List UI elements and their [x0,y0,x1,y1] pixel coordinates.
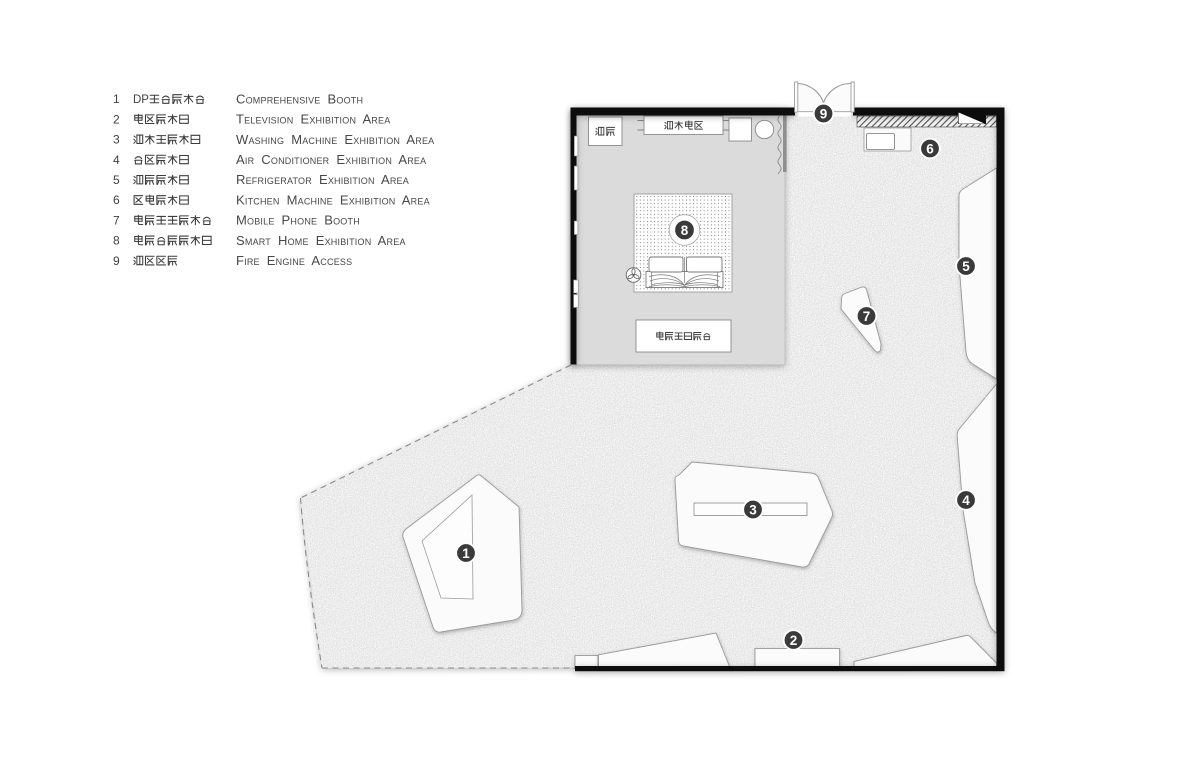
svg-text:1: 1 [113,92,120,106]
svg-text:7: 7 [113,213,120,227]
svg-text:Refrigerator Exhibition Area: Refrigerator Exhibition Area [236,172,409,187]
svg-text:4: 4 [962,493,970,508]
svg-text:6: 6 [113,193,120,207]
svg-text:Television Exhibition Area: Television Exhibition Area [236,112,390,127]
svg-text:6: 6 [926,141,934,156]
svg-text:Fire Engine Access: Fire Engine Access [236,253,352,268]
svg-text:5: 5 [962,259,970,274]
svg-text:4: 4 [113,153,120,167]
svg-text:2: 2 [790,633,798,648]
svg-text:3: 3 [749,502,757,517]
svg-text:9: 9 [113,254,120,268]
svg-text:3: 3 [113,133,120,147]
svg-text:Mobile Phone Booth: Mobile Phone Booth [236,213,360,228]
svg-text:8: 8 [113,234,120,248]
svg-text:Smart Home Exhibition Area: Smart Home Exhibition Area [236,233,406,248]
svg-text:7: 7 [863,309,871,324]
svg-text:Air Conditioner Exhibition Are: Air Conditioner Exhibition Area [236,152,426,167]
svg-text:8: 8 [681,223,689,238]
svg-text:Comprehensive Booth: Comprehensive Booth [236,91,363,106]
svg-text:1: 1 [462,546,470,561]
svg-text:5: 5 [113,173,120,187]
svg-text:Washing Machine Exhibition Are: Washing Machine Exhibition Area [236,132,434,147]
svg-text:Kitchen Machine Exhibition Are: Kitchen Machine Exhibition Area [236,192,430,207]
svg-text:DP: DP [133,94,149,106]
svg-text:9: 9 [820,106,828,121]
svg-text:2: 2 [113,112,120,126]
